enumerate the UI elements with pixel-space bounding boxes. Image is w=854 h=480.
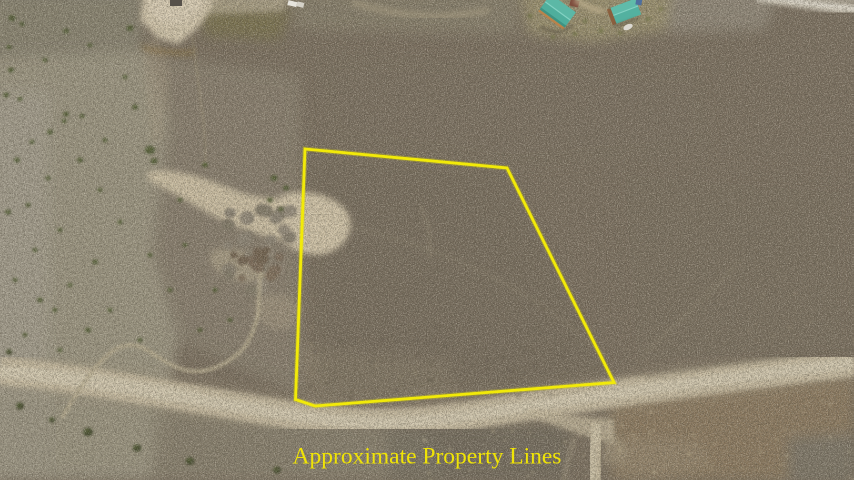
svg-text:Approximate Property Lines: Approximate Property Lines [293,444,562,470]
